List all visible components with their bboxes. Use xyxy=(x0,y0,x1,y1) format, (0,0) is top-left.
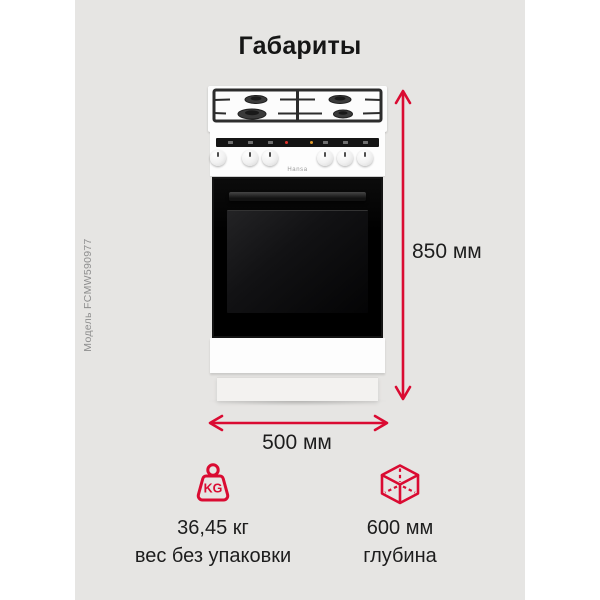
cube-icon xyxy=(376,461,424,509)
depth-caption: глубина xyxy=(320,545,480,568)
weight-spec: KG 36,45 кг вес без упаковки xyxy=(133,461,293,568)
product-infographic: Габариты Модель FCMW590977 xyxy=(0,0,600,600)
width-dimension-label: 500 мм xyxy=(235,431,359,455)
svg-text:KG: KG xyxy=(204,482,223,496)
weight-value: 36,45 кг xyxy=(133,517,293,540)
depth-spec: 600 мм глубина xyxy=(320,461,480,568)
height-dimension-label: 850 мм xyxy=(412,240,482,264)
width-arrow xyxy=(210,416,387,430)
photo-card: Габариты Модель FCMW590977 xyxy=(75,0,525,600)
kg-weight-icon: KG xyxy=(191,461,235,509)
height-arrow xyxy=(396,91,410,399)
depth-value: 600 мм xyxy=(320,517,480,540)
weight-caption: вес без упаковки xyxy=(133,545,293,568)
